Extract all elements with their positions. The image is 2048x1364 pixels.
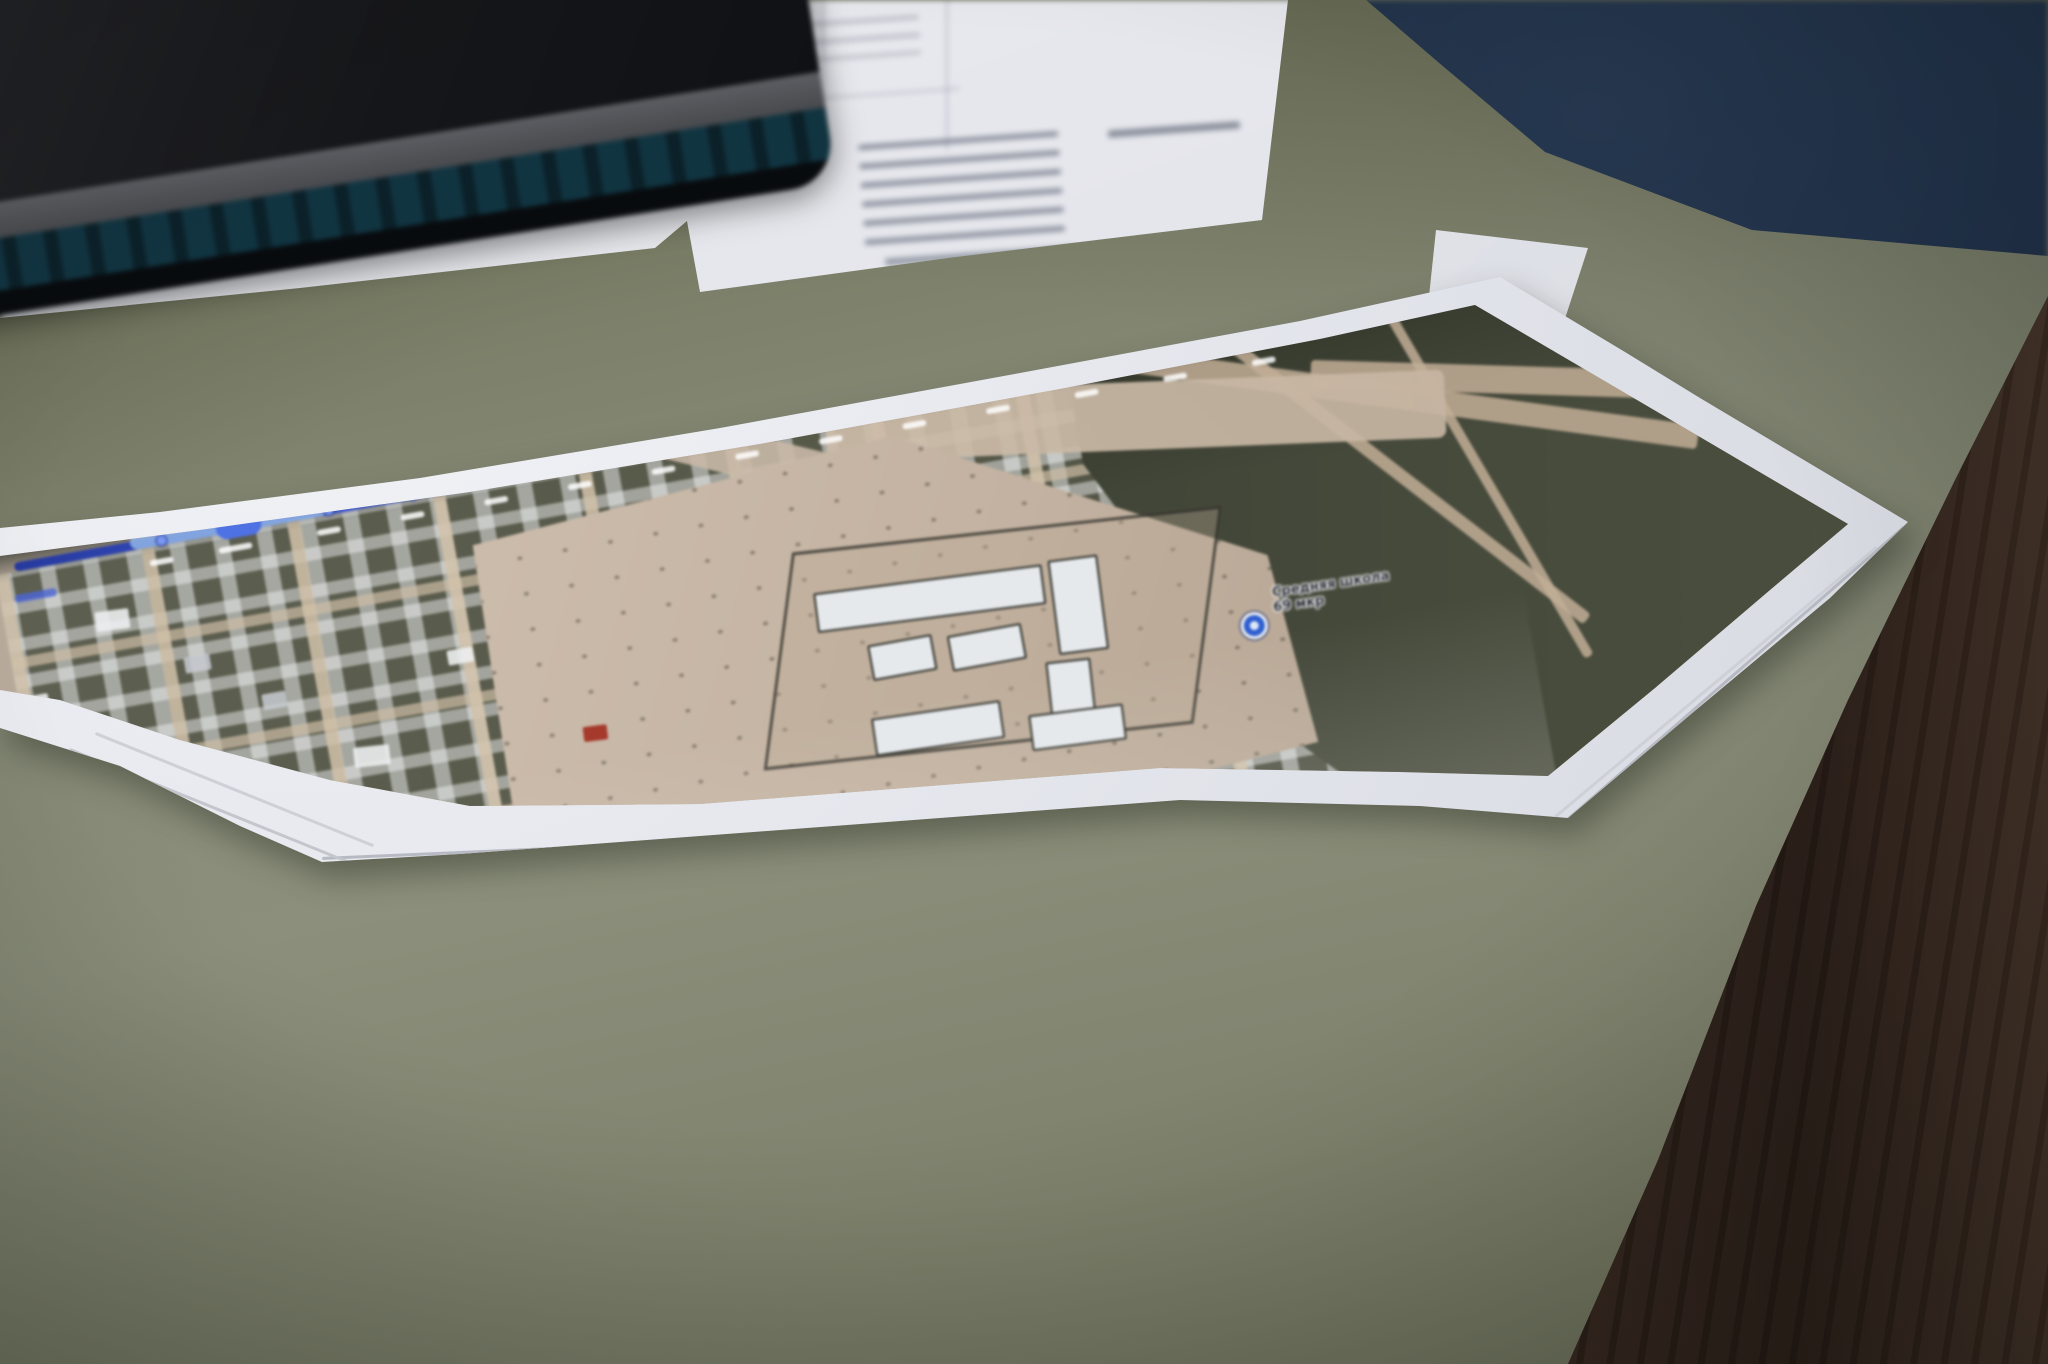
map-house-roof (264, 870, 310, 901)
map-house-roof (786, 838, 819, 861)
map-house-roof (143, 935, 174, 958)
map-printout-stack: Средняя школа 69 мкр (0, 0, 2048, 1364)
stack-bottom-shading (0, 0, 2048, 1364)
map-house-roof (397, 878, 430, 901)
map-printout-shadow-wrap: Средняя школа 69 мкр (0, 0, 2048, 1364)
map-house-roof (1069, 828, 1097, 848)
desk-photo-scene: Средняя школа 69 мкр (0, 0, 2048, 1364)
map-house-roof (917, 833, 955, 860)
